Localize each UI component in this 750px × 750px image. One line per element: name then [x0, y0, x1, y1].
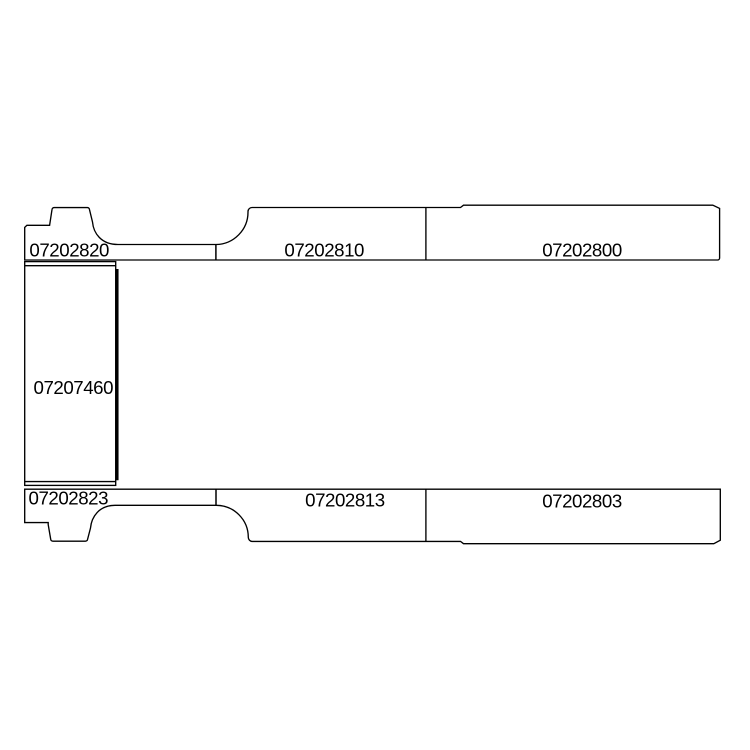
svg-text:07202800: 07202800	[542, 239, 622, 260]
svg-text:07202810: 07202810	[284, 239, 364, 260]
svg-text:07202823: 07202823	[29, 488, 109, 509]
svg-text:07207460: 07207460	[34, 377, 114, 398]
svg-text:07202820: 07202820	[29, 239, 109, 260]
svg-text:07202813: 07202813	[305, 489, 385, 510]
svg-text:07202803: 07202803	[542, 490, 622, 511]
